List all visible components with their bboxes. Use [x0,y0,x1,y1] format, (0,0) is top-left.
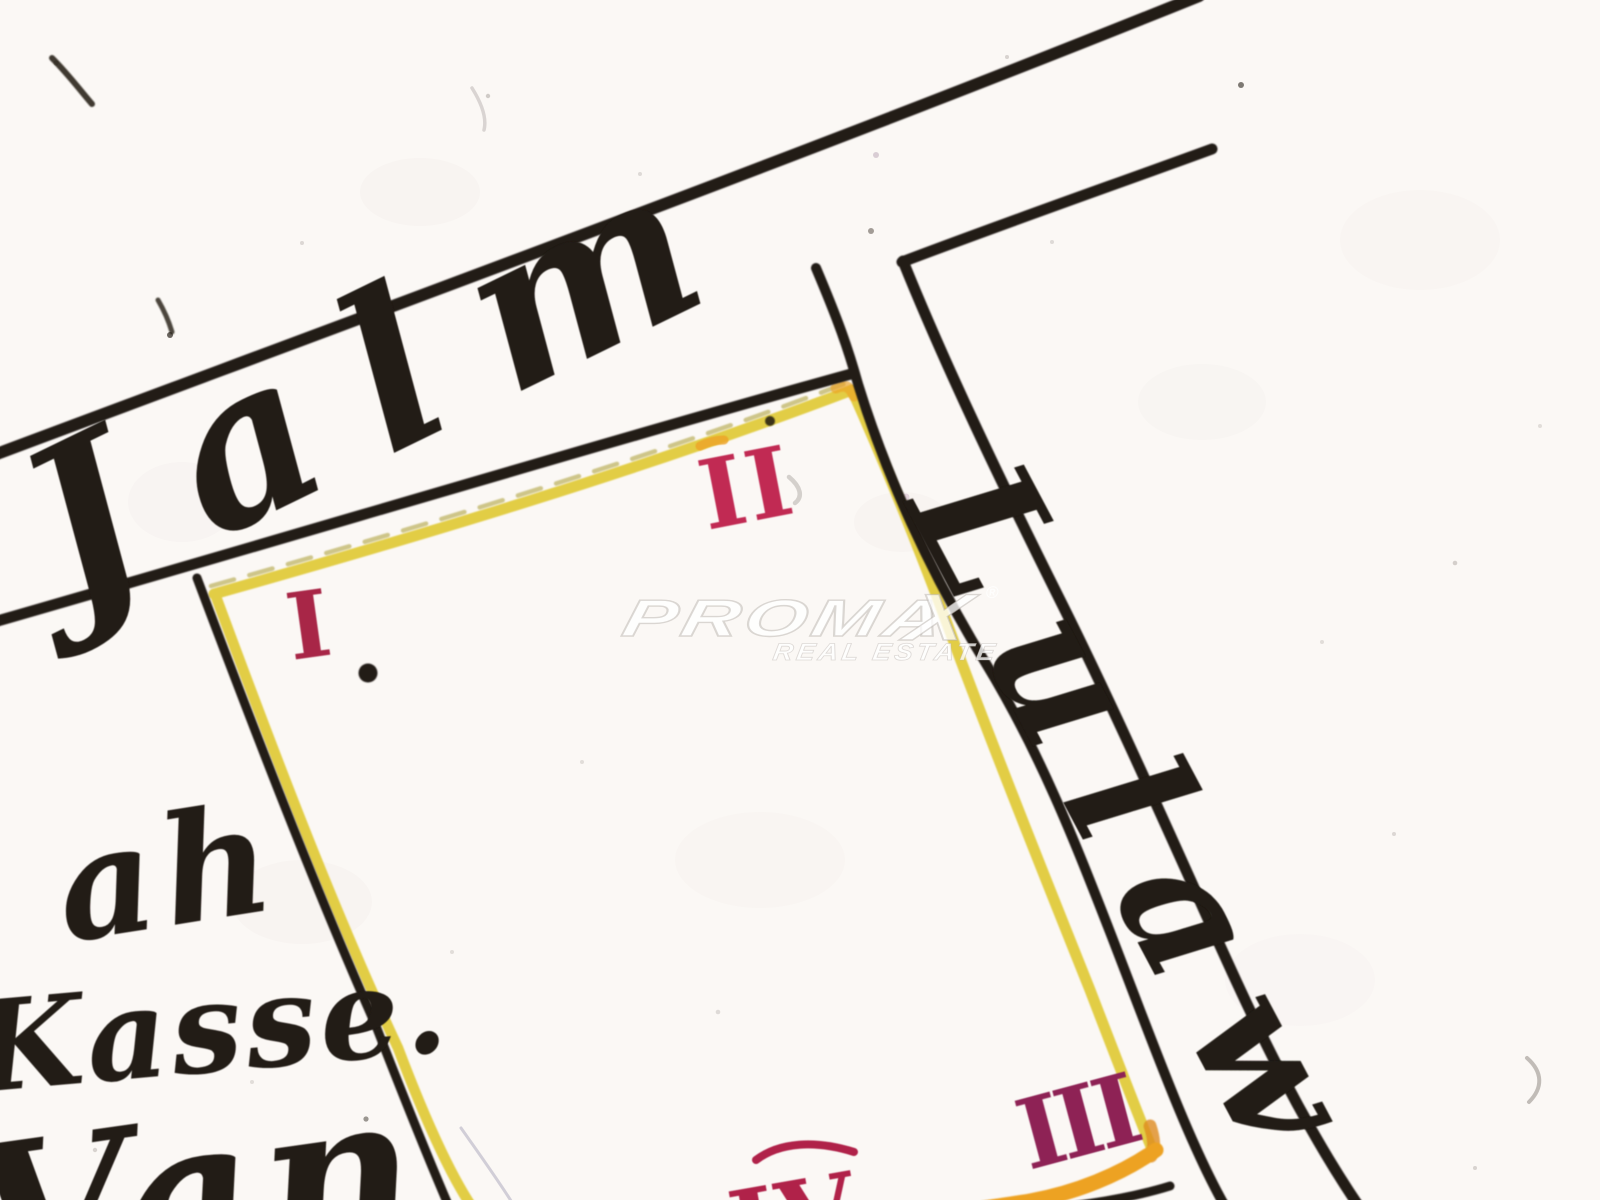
cadastral-map-drawing: Jalm Lulaw ah Kasse. Van I II III IV PRO… [0,0,1600,1200]
ink-blot [359,664,378,683]
margin-note-line-1: ah [44,769,291,978]
watermark-tagline: REAL ESTATE [771,638,1000,666]
map-canvas: Jalm Lulaw ah Kasse. Van I II III IV PRO… [0,0,1600,1200]
watermark-registered-mark: ® [984,583,1002,602]
